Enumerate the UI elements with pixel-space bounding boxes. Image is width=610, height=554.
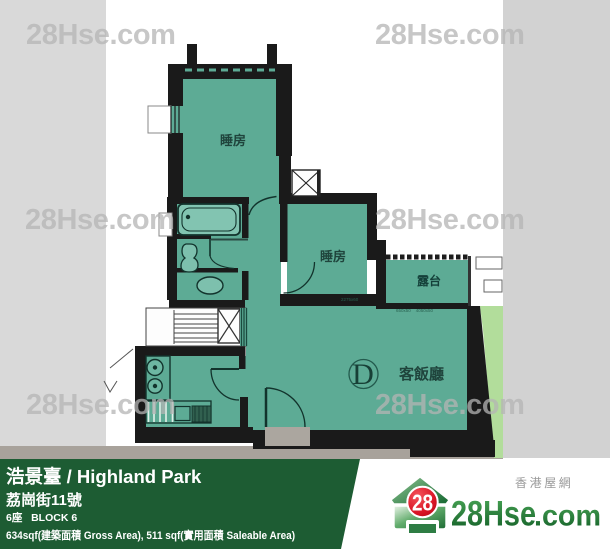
svg-text:香港屋網: 香港屋網 — [515, 476, 573, 490]
svg-text:2275x60: 2275x60 — [341, 297, 359, 302]
svg-text:D: D — [352, 358, 374, 391]
svg-text:睡房: 睡房 — [320, 249, 346, 264]
svg-text:28: 28 — [412, 490, 433, 516]
svg-text:.com: .com — [534, 500, 601, 533]
svg-text:露台: 露台 — [417, 273, 441, 288]
svg-text:睡房: 睡房 — [220, 133, 246, 148]
svg-text:650x50 4050x50: 650x50 4050x50 — [396, 308, 434, 313]
svg-text:28Hse: 28Hse — [451, 495, 536, 534]
svg-text:客飯廳: 客飯廳 — [398, 365, 444, 383]
